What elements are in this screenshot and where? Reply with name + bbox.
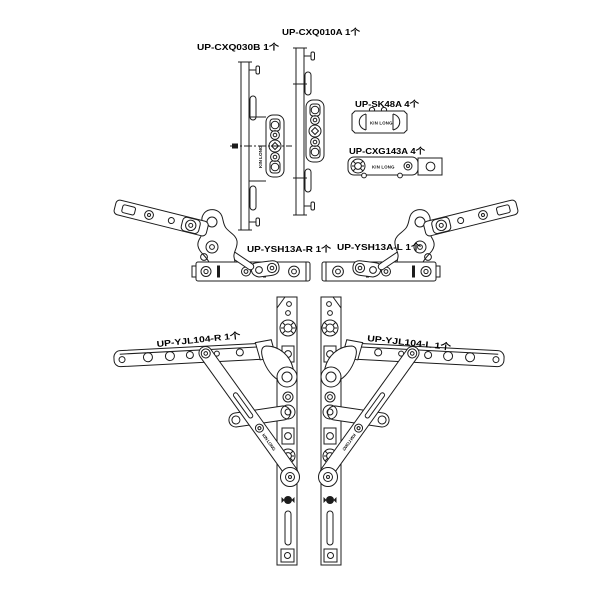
upper-pivot — [277, 367, 297, 387]
part-sk48a-drawing: KIN LONG — [352, 107, 407, 133]
part-cxg143a-drawing: KIN LONG — [348, 157, 442, 178]
track-end-tab — [192, 266, 196, 277]
plate-hole — [426, 162, 435, 171]
face-bar — [296, 48, 304, 215]
pin-head — [256, 66, 260, 74]
label-ysh13a-r: UP-YSH13A-R 1个 — [247, 244, 332, 254]
bottom-bump — [398, 173, 403, 178]
brand-text-vertical: KIN LONG — [258, 145, 263, 168]
brand-text: KIN LONG — [370, 121, 393, 126]
rivet-dot — [284, 496, 292, 504]
cam-slot — [250, 186, 256, 210]
mount-plate — [418, 158, 442, 175]
stay-arm — [114, 343, 267, 367]
drawing-canvas: KIN LONG KIN LONG — [0, 0, 600, 600]
index-tick — [217, 266, 220, 278]
part-ysh13a-r-drawing — [113, 199, 310, 281]
label-cxq010a: UP-CXQ010A 1个 — [282, 27, 361, 37]
pin-head — [256, 218, 260, 226]
label-sk48a: UP-SK48A 4个 — [355, 99, 420, 109]
label-cxq030b: UP-CXQ030B 1个 — [197, 42, 280, 52]
dimension-mark — [232, 144, 238, 149]
bottom-bump — [362, 173, 367, 178]
brand-text: KIN LONG — [372, 165, 395, 170]
pin-head — [311, 202, 315, 210]
pin-head — [311, 52, 315, 60]
part-ysh13a-l-drawing — [322, 199, 519, 281]
cam-slot — [250, 96, 256, 120]
part-cxq010a-drawing — [293, 48, 324, 215]
label-ysh13a-l: UP-YSH13A-L 1个 — [337, 242, 422, 252]
cam-slot — [305, 169, 311, 192]
lower-pivot — [281, 468, 300, 487]
parts-diagram: KIN LONG KIN LONG — [0, 0, 600, 600]
screw-tick-lines — [293, 84, 307, 178]
part-cxq030b-drawing: KIN LONG — [230, 62, 292, 230]
label-cxg143a: UP-CXG143A 4个 — [349, 146, 426, 156]
